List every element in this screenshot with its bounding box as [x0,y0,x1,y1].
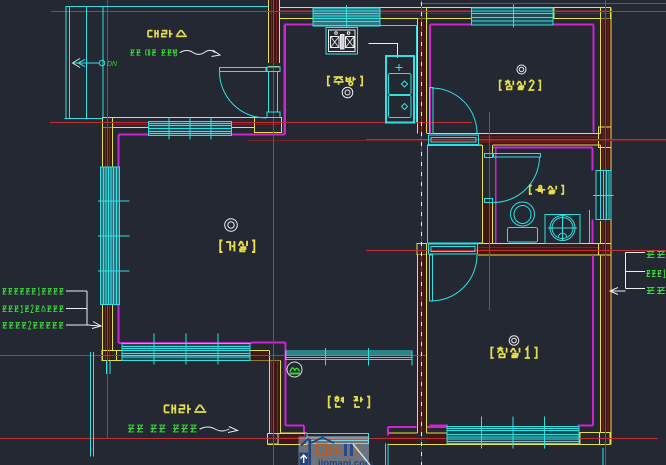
svg-text:DN: DN [107,61,118,68]
